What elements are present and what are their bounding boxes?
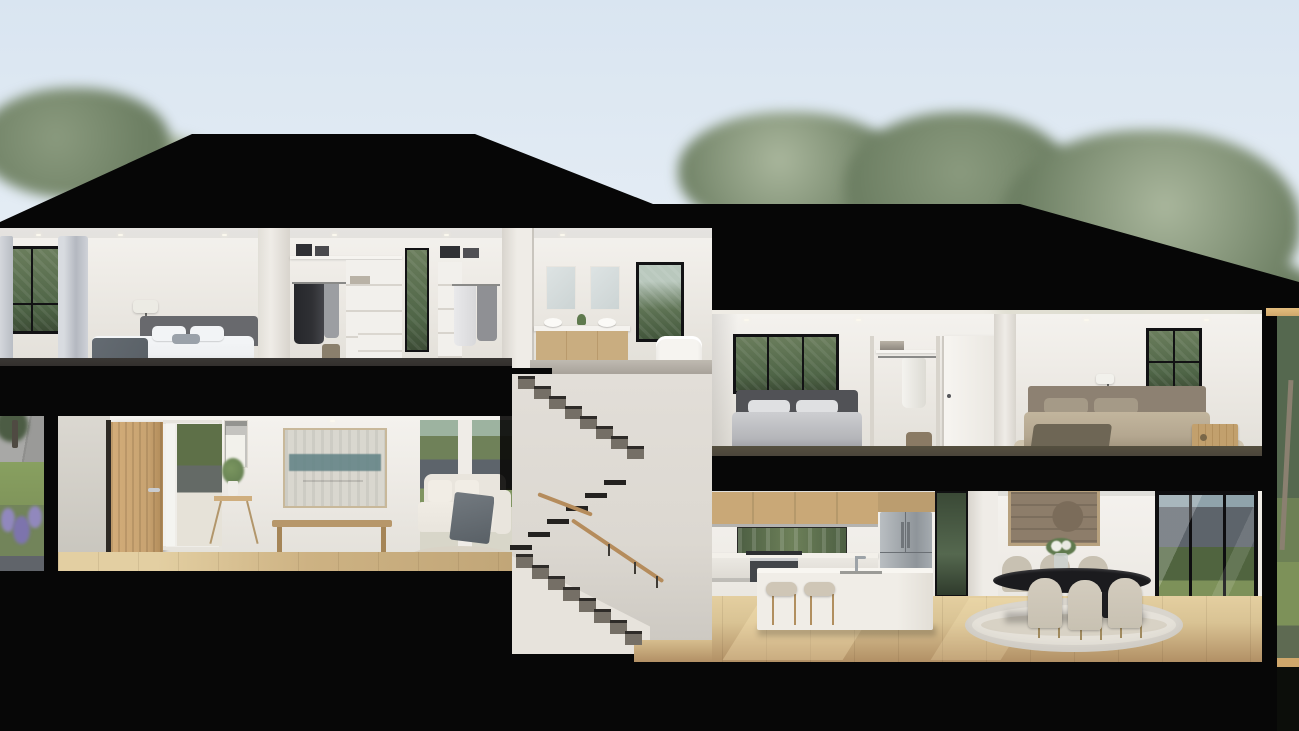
window-mullion <box>767 337 769 391</box>
island-tap-spout <box>855 556 866 559</box>
window-transom <box>5 303 59 305</box>
lavender <box>28 506 42 528</box>
hall-artwork <box>283 428 387 508</box>
downlight <box>332 234 337 236</box>
handrail-post <box>608 544 610 556</box>
bar-stool <box>766 582 797 596</box>
stair-step <box>627 446 644 459</box>
fridge-door-split <box>905 512 906 552</box>
bar-stool <box>804 582 835 596</box>
robe2-white-clothes <box>454 286 476 346</box>
robe-divider <box>870 336 874 454</box>
robe1-shelf <box>290 256 402 259</box>
downlight <box>118 234 123 236</box>
stair-step <box>611 436 628 449</box>
folded-towels <box>880 341 904 350</box>
stair-corner-shadow <box>500 416 512 490</box>
sofa-cushion <box>428 480 452 502</box>
stair-step <box>563 587 580 601</box>
fridge-handles <box>901 522 904 548</box>
backyard-strip <box>1277 314 1299 668</box>
window-mullion <box>31 249 33 331</box>
artwork-teal-band <box>289 454 381 471</box>
downlight <box>1204 319 1209 321</box>
door-handle <box>148 488 160 492</box>
stair-open-tread <box>510 545 532 550</box>
handrail-post <box>634 562 636 574</box>
downlight <box>222 234 227 236</box>
wall-light-head <box>1096 374 1114 384</box>
left-cut-wall <box>44 412 58 571</box>
bedroom-door <box>942 336 996 450</box>
artwork-streak <box>303 480 363 482</box>
vanity-plant <box>577 314 586 325</box>
robe-bathroom-wall <box>502 228 534 374</box>
lower-foundation <box>634 662 1277 731</box>
sofa-throw <box>449 492 495 545</box>
stair-open-tread <box>528 532 550 537</box>
stair-landing-floor <box>634 640 712 662</box>
robe1-dark-clothes <box>294 284 324 344</box>
bedroom2-window <box>733 334 839 394</box>
basin <box>544 318 562 327</box>
stair-step <box>516 554 533 568</box>
stair-step <box>625 631 642 645</box>
bathroom-window <box>636 262 684 342</box>
right-cut-wall <box>1262 306 1277 668</box>
robe2-storage-box <box>463 248 479 258</box>
curtain-right <box>58 236 88 372</box>
bathroom-mirror <box>590 266 620 310</box>
bench-top <box>272 520 392 527</box>
right-wing-slab <box>628 456 1277 491</box>
right-roof-fascia <box>712 310 1262 314</box>
bed-pillow-accent <box>172 334 200 344</box>
plant-pot <box>228 481 238 496</box>
stair-foundation <box>512 654 634 731</box>
door-handle <box>947 394 951 398</box>
robe1-storage-box <box>315 246 329 256</box>
cooktop <box>746 551 802 555</box>
upper-floor-slab <box>0 366 512 416</box>
street-tree-trunk <box>12 420 18 448</box>
downlight <box>36 234 41 236</box>
entry-feature-wall <box>58 416 110 571</box>
downlight <box>560 234 565 236</box>
stair-open-tread <box>604 480 626 485</box>
robe1-folded-stack <box>350 276 370 284</box>
bedroom3-window <box>1146 328 1202 394</box>
floor-lamp-shade <box>133 300 158 313</box>
stair-step <box>580 416 597 429</box>
kitchen-upper-cabinets <box>712 492 878 524</box>
handrail-post <box>656 576 658 588</box>
sofa-arm <box>494 490 511 534</box>
kitchen-island <box>757 568 933 630</box>
bedside-table-knob <box>1200 434 1207 441</box>
stair-step <box>532 565 549 579</box>
window-mullion <box>802 337 804 391</box>
downlight <box>744 319 749 321</box>
stool-legs <box>772 594 774 625</box>
bedroom-wall-column <box>994 314 1016 456</box>
backyard-strip-base <box>1277 667 1299 731</box>
robe-shelf <box>876 350 936 353</box>
robe2-storage-box <box>440 246 460 258</box>
stair-open-tread <box>585 493 607 498</box>
robe-divider <box>936 336 940 454</box>
window-transom <box>1149 361 1199 363</box>
stair-step <box>594 609 611 623</box>
lit-fence-line <box>1277 658 1299 667</box>
sheer-curtain <box>163 424 175 546</box>
robe2-gray-clothes <box>477 286 497 341</box>
bathroom-floor <box>530 360 712 374</box>
stair-step <box>518 376 535 389</box>
robe-window <box>405 248 429 352</box>
bedroom2-duvet <box>732 412 862 450</box>
ground-timber-floor <box>58 552 512 571</box>
downlight <box>444 234 449 236</box>
dining-chair <box>1068 580 1102 630</box>
bathroom-mirror <box>546 266 576 310</box>
eave-fascia-gold <box>1266 308 1299 316</box>
dining-chair <box>1108 578 1142 628</box>
bedroom-robe-wall <box>258 228 290 374</box>
robe1-light-jacket <box>324 284 339 338</box>
left-foundation <box>0 571 512 731</box>
dining-artwork <box>1008 489 1100 546</box>
downlight <box>856 319 861 321</box>
island-sink <box>840 571 882 574</box>
downlight <box>330 420 335 422</box>
fridge-freezer-line <box>880 552 932 553</box>
stair-step <box>549 396 566 409</box>
kitchen-cabinet-over-fridge <box>878 492 935 512</box>
front-path <box>0 556 44 571</box>
basin <box>598 318 616 327</box>
stair-open-tread <box>547 519 569 524</box>
robe1-storage-box <box>296 244 312 256</box>
stool-legs <box>810 594 812 625</box>
cross-section-render <box>0 0 1299 731</box>
curtain-left <box>0 236 13 374</box>
kitchen-dining-wall <box>968 491 998 603</box>
downlight <box>1084 319 1089 321</box>
upper-ceiling-shadow <box>0 228 712 238</box>
kitchen-corner-glazing <box>935 491 968 597</box>
hanging-shirt <box>902 358 926 408</box>
dining-chair <box>1028 578 1062 628</box>
